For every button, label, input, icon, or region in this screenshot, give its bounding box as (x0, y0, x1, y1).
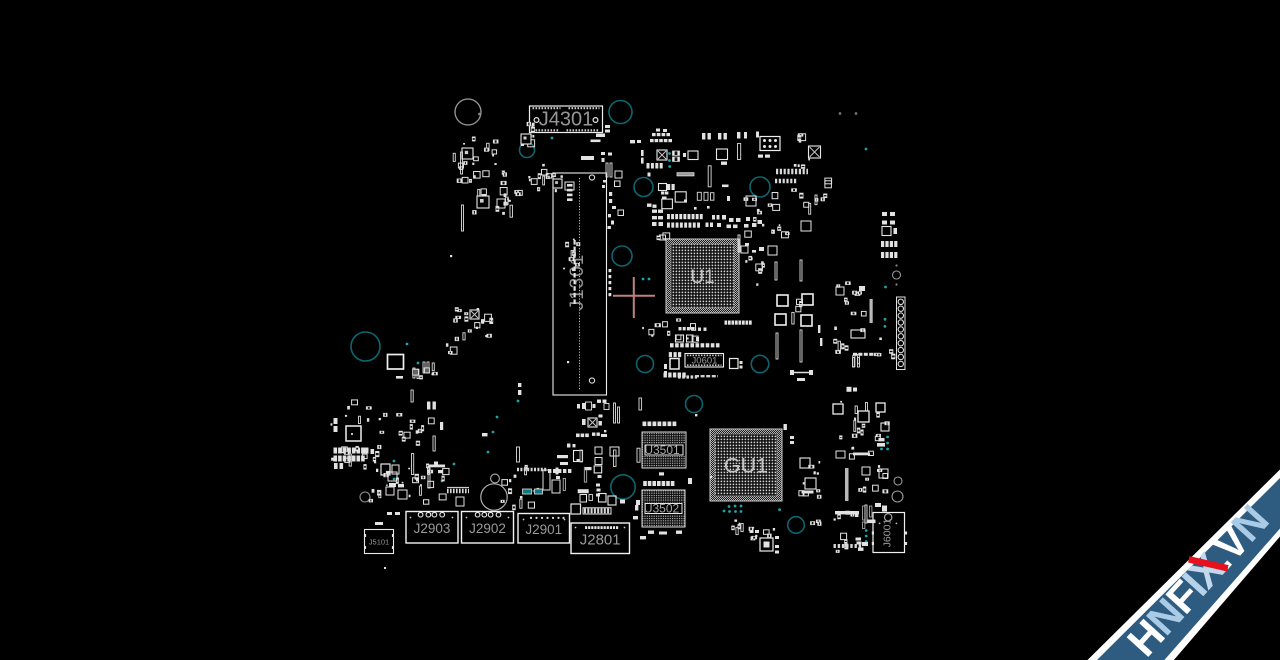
svg-text:J0601: J0601 (692, 356, 718, 367)
svg-text:U3501: U3501 (644, 443, 680, 457)
svg-text:U3502: U3502 (644, 502, 680, 516)
svg-text:J2902: J2902 (469, 521, 506, 536)
svg-text:GU1: GU1 (724, 454, 768, 478)
svg-text:J2801: J2801 (580, 532, 621, 549)
svg-text:J2903: J2903 (414, 521, 451, 536)
svg-text:J6001: J6001 (882, 519, 894, 548)
svg-text:J4301: J4301 (539, 108, 594, 130)
svg-text:J1301: J1301 (567, 254, 588, 311)
svg-text:J2901: J2901 (525, 522, 562, 537)
svg-text:J5101: J5101 (369, 538, 389, 547)
svg-text:U1: U1 (690, 267, 714, 288)
